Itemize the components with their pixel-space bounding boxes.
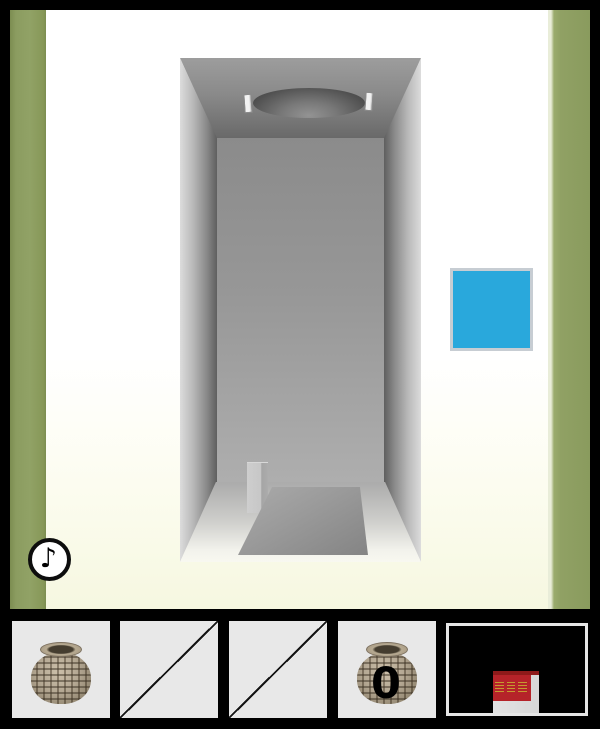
scene-thumbnail[interactable] (446, 623, 588, 716)
right-wall-strip (548, 10, 590, 609)
corridor-view[interactable] (180, 58, 421, 562)
inventory-slot-4[interactable]: 0 (338, 621, 436, 718)
corridor-back-wall (216, 138, 385, 482)
thumbnail-red-sign (493, 675, 531, 701)
woven-basket-item (31, 642, 91, 704)
game-stage: ♪ 0 (0, 0, 600, 729)
basket-rim (366, 642, 408, 657)
left-wall-strip (10, 10, 46, 609)
music-toggle-button[interactable]: ♪ (28, 538, 71, 581)
red-sign-gold-marks (495, 682, 527, 692)
basket-body (31, 652, 91, 704)
hatch-bracket-right-icon (364, 92, 373, 112)
corridor-left-wall (180, 58, 217, 562)
item-count-label: 0 (371, 663, 401, 706)
inventory-slot-3[interactable] (229, 621, 327, 718)
basket-rim (40, 642, 82, 657)
room-scene[interactable]: ♪ (10, 10, 590, 609)
ceiling-hatch-hole[interactable] (253, 88, 365, 118)
blue-square-button[interactable] (450, 268, 533, 351)
inventory-slot-1[interactable] (12, 621, 110, 718)
inventory-slot-2[interactable] (120, 621, 218, 718)
music-note-icon: ♪ (40, 545, 57, 572)
corridor-right-wall (384, 58, 421, 562)
hatch-bracket-left-icon (243, 94, 252, 114)
